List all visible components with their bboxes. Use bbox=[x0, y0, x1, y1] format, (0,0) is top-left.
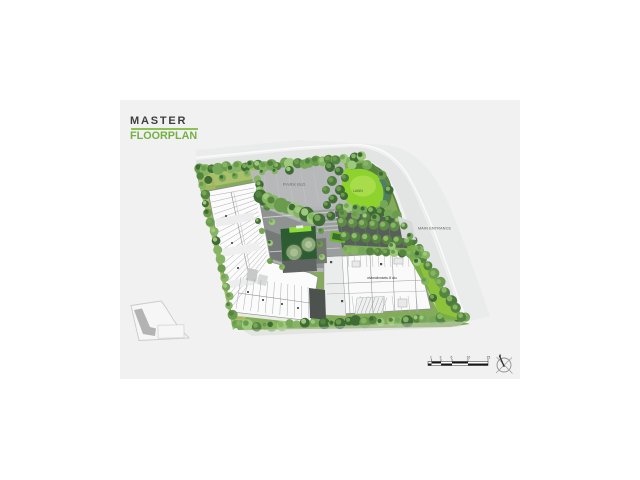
svg-text:3: 3 bbox=[440, 356, 442, 360]
svg-text:MAIN ENTRANCE: MAIN ENTRANCE bbox=[418, 227, 451, 231]
svg-text:oiviwoiivnseiu 8 uiu: oiviwoiivnseiu 8 uiu bbox=[367, 276, 397, 280]
svg-text:LAWN: LAWN bbox=[353, 189, 363, 193]
svg-text:15: 15 bbox=[487, 356, 491, 360]
svg-text:6: 6 bbox=[451, 356, 453, 360]
svg-text:10: 10 bbox=[467, 356, 471, 360]
svg-text:PARKING: PARKING bbox=[283, 182, 306, 187]
svg-text:1: 1 bbox=[430, 356, 432, 360]
